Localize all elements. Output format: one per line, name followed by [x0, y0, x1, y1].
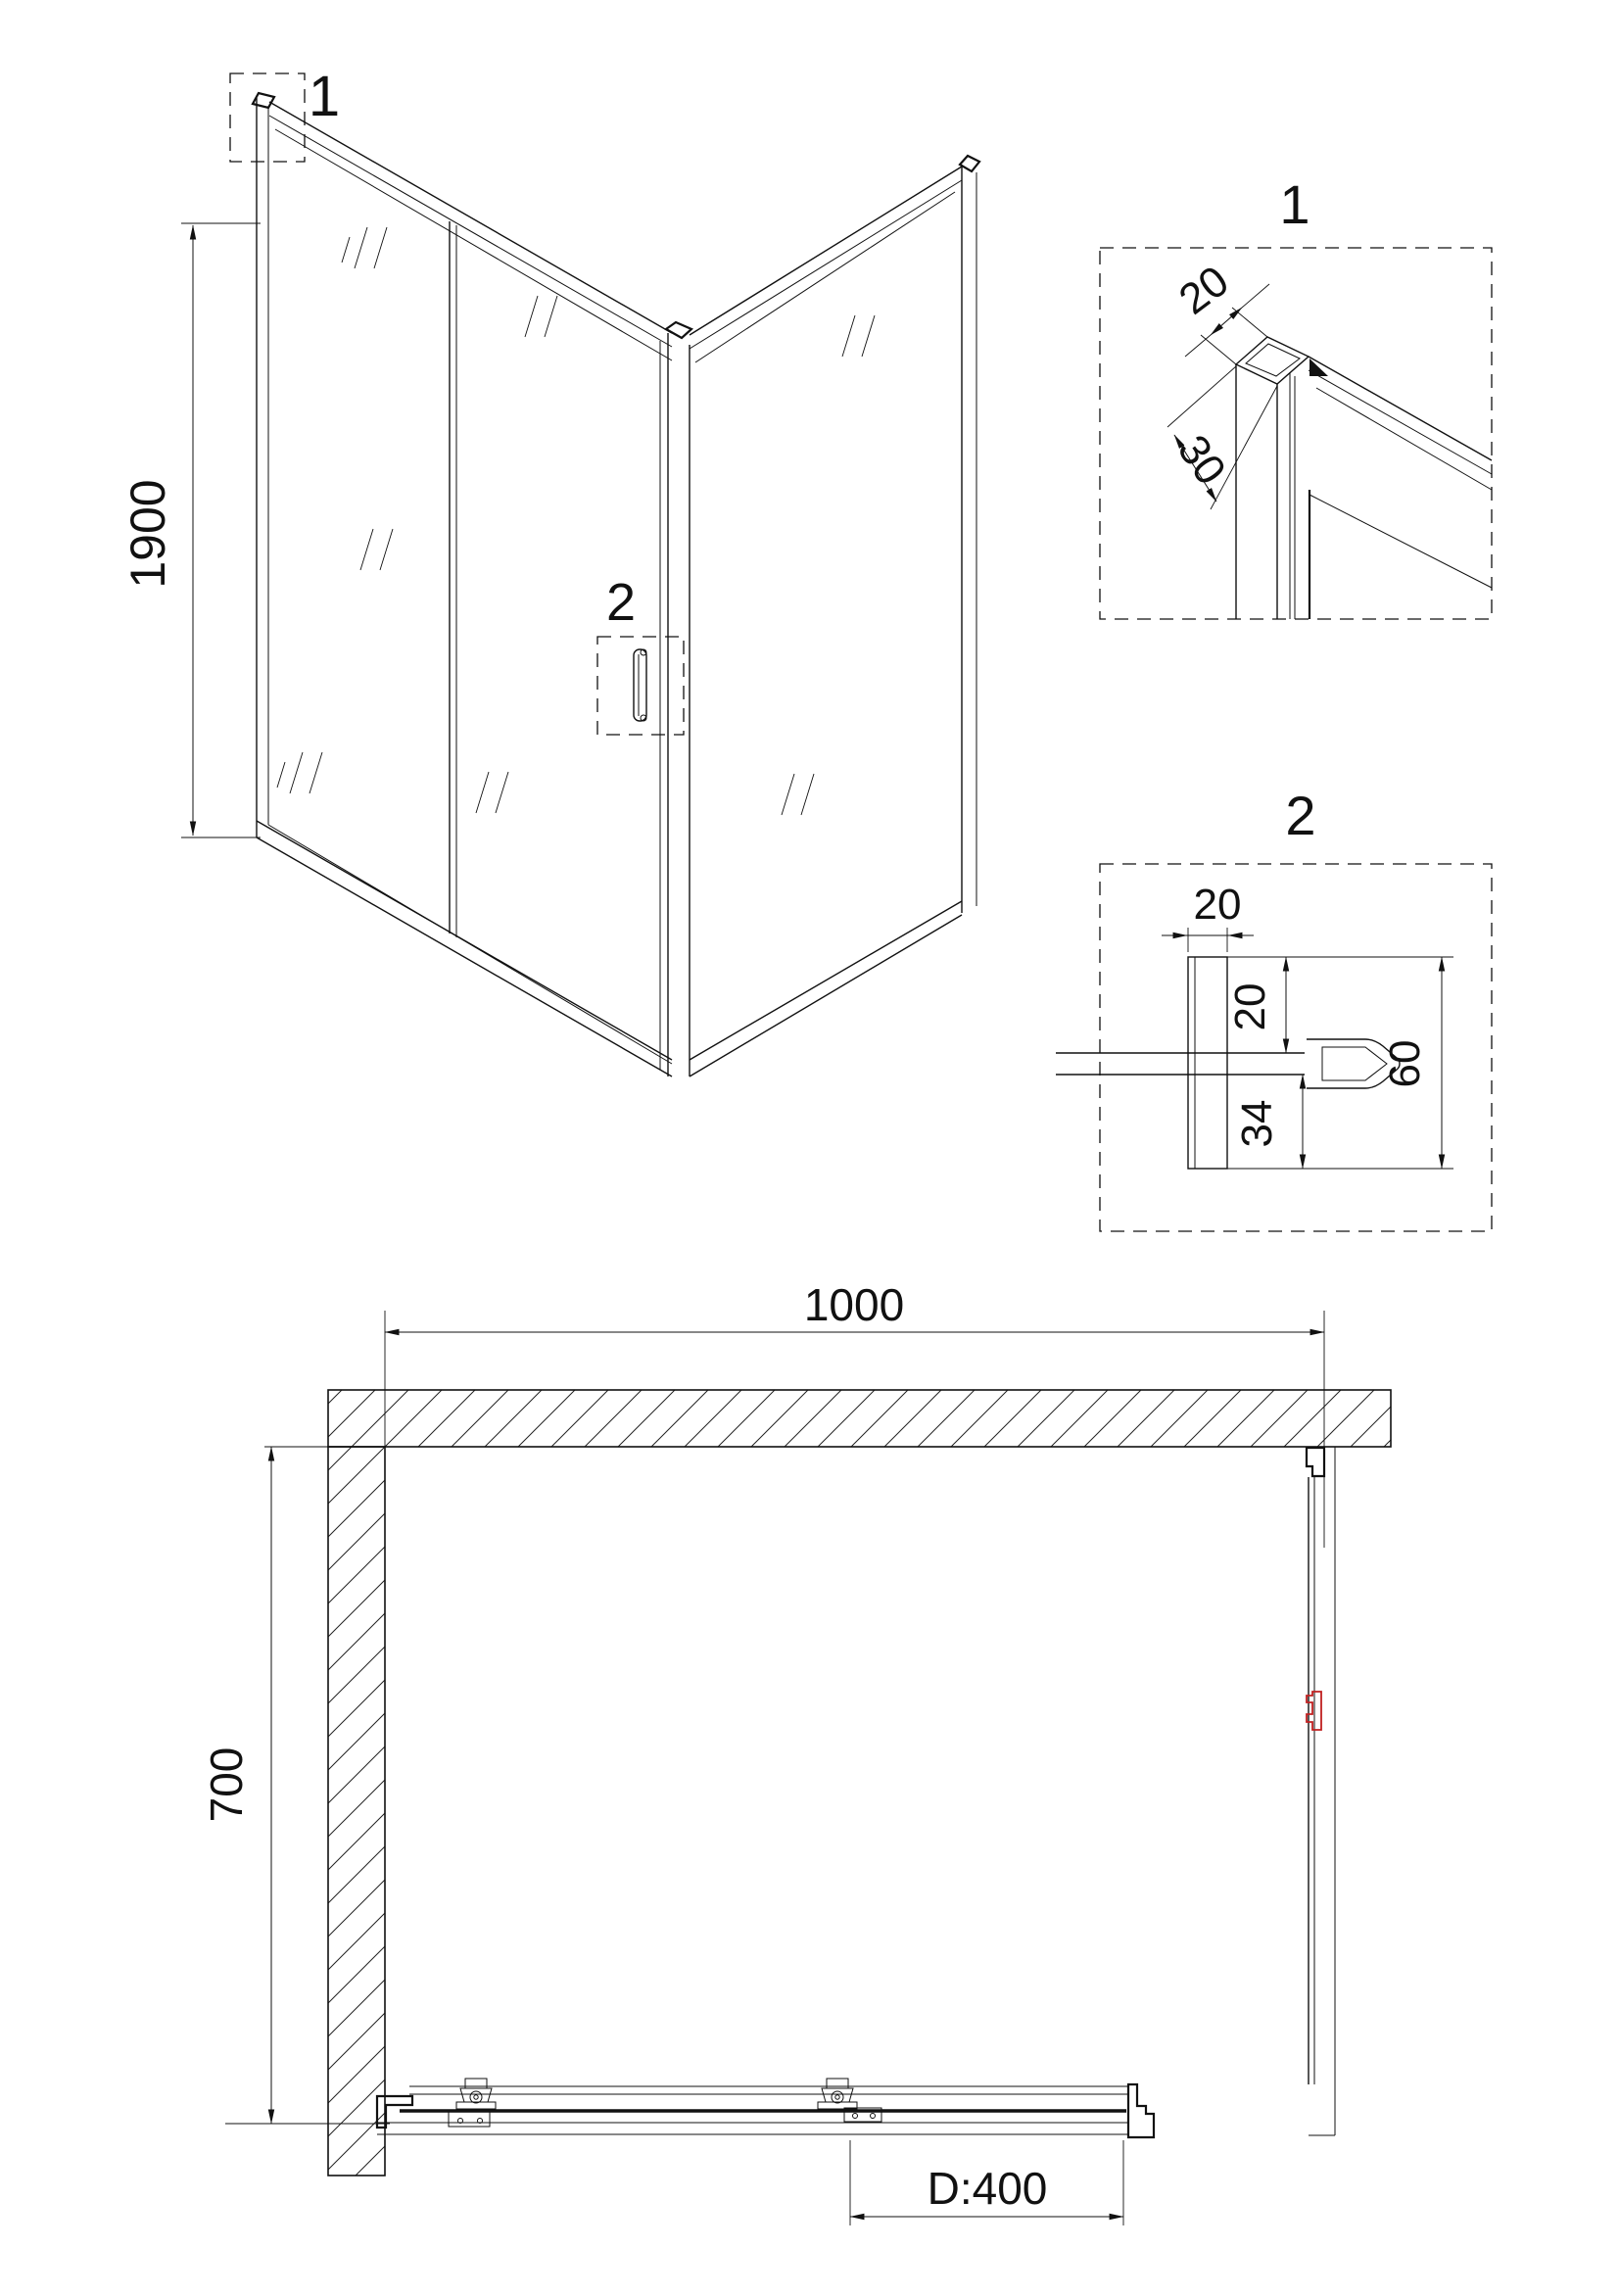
dim-700-label: 700 [201, 1747, 252, 1823]
detail-2: 2 20 20 34 [1056, 785, 1492, 1231]
callout-2-label: 2 [606, 573, 636, 632]
plan-wall-left [328, 1447, 385, 2176]
profile-shadow-triangle [1309, 359, 1328, 376]
detail-2-box [1100, 864, 1492, 1231]
detail-2-dim-20-gap-label: 20 [1226, 983, 1274, 1031]
detail-2-dim-20-gap: 20 [1226, 957, 1286, 1053]
dim-1000-label: 1000 [804, 1279, 904, 1330]
corner-profile-iso [1236, 337, 1492, 619]
detail-2-dim-20-top-label: 20 [1194, 881, 1242, 929]
rear-right-post [960, 156, 979, 913]
wall-profile-plan [1307, 1448, 1324, 1476]
detail-2-dim-20-top: 20 [1162, 881, 1254, 952]
detail-1-dim-30: 30 [1167, 366, 1277, 509]
detail-1-box [1100, 248, 1492, 619]
front-bottom-rail [257, 821, 672, 1076]
detail-1: 1 20 30 [1100, 173, 1492, 619]
dim-d400-label: D:400 [928, 2163, 1048, 2214]
side-top-rail [690, 167, 962, 362]
dim-1900-label: 1900 [120, 479, 175, 588]
door-divider [450, 221, 456, 937]
plan-wall-top [328, 1390, 1391, 1447]
drawing-page: 2 1 1900 1 [0, 0, 1619, 2291]
dim-1900: 1900 [120, 223, 261, 837]
detail-2-dim-60-label: 60 [1381, 1040, 1429, 1088]
detail-2-dim-60: 60 [1381, 957, 1442, 1169]
plan-side-panel [1307, 1447, 1335, 2135]
callout-1-box [230, 73, 305, 162]
corner-post [660, 322, 691, 1076]
door-handle [634, 649, 646, 721]
corner-bracket-right [1128, 2084, 1154, 2137]
detail-1-dim-20-label: 20 [1170, 257, 1238, 324]
front-left-post [253, 93, 274, 837]
callout-1-label: 1 [309, 65, 340, 128]
detail-1-title: 1 [1279, 173, 1309, 235]
technical-drawing: 2 1 1900 1 [0, 0, 1619, 2291]
roller-assembly-1 [449, 2079, 496, 2127]
plan-bottom-track [377, 2079, 1154, 2137]
seal-chevron [1322, 1047, 1387, 1080]
roller-assembly-2 [818, 2079, 881, 2122]
side-bottom-rail [690, 901, 962, 1076]
dim-d400: D:400 [850, 2140, 1123, 2225]
plan-view: 1000 700 [201, 1279, 1391, 2225]
glass-reflections [277, 227, 875, 815]
iso-view: 2 1 1900 [120, 65, 979, 1076]
detail-2-dim-34-label: 34 [1233, 1100, 1281, 1148]
detail-2-dim-34: 34 [1233, 1075, 1303, 1169]
front-top-rail [269, 102, 672, 360]
detail-2-title: 2 [1285, 785, 1315, 846]
